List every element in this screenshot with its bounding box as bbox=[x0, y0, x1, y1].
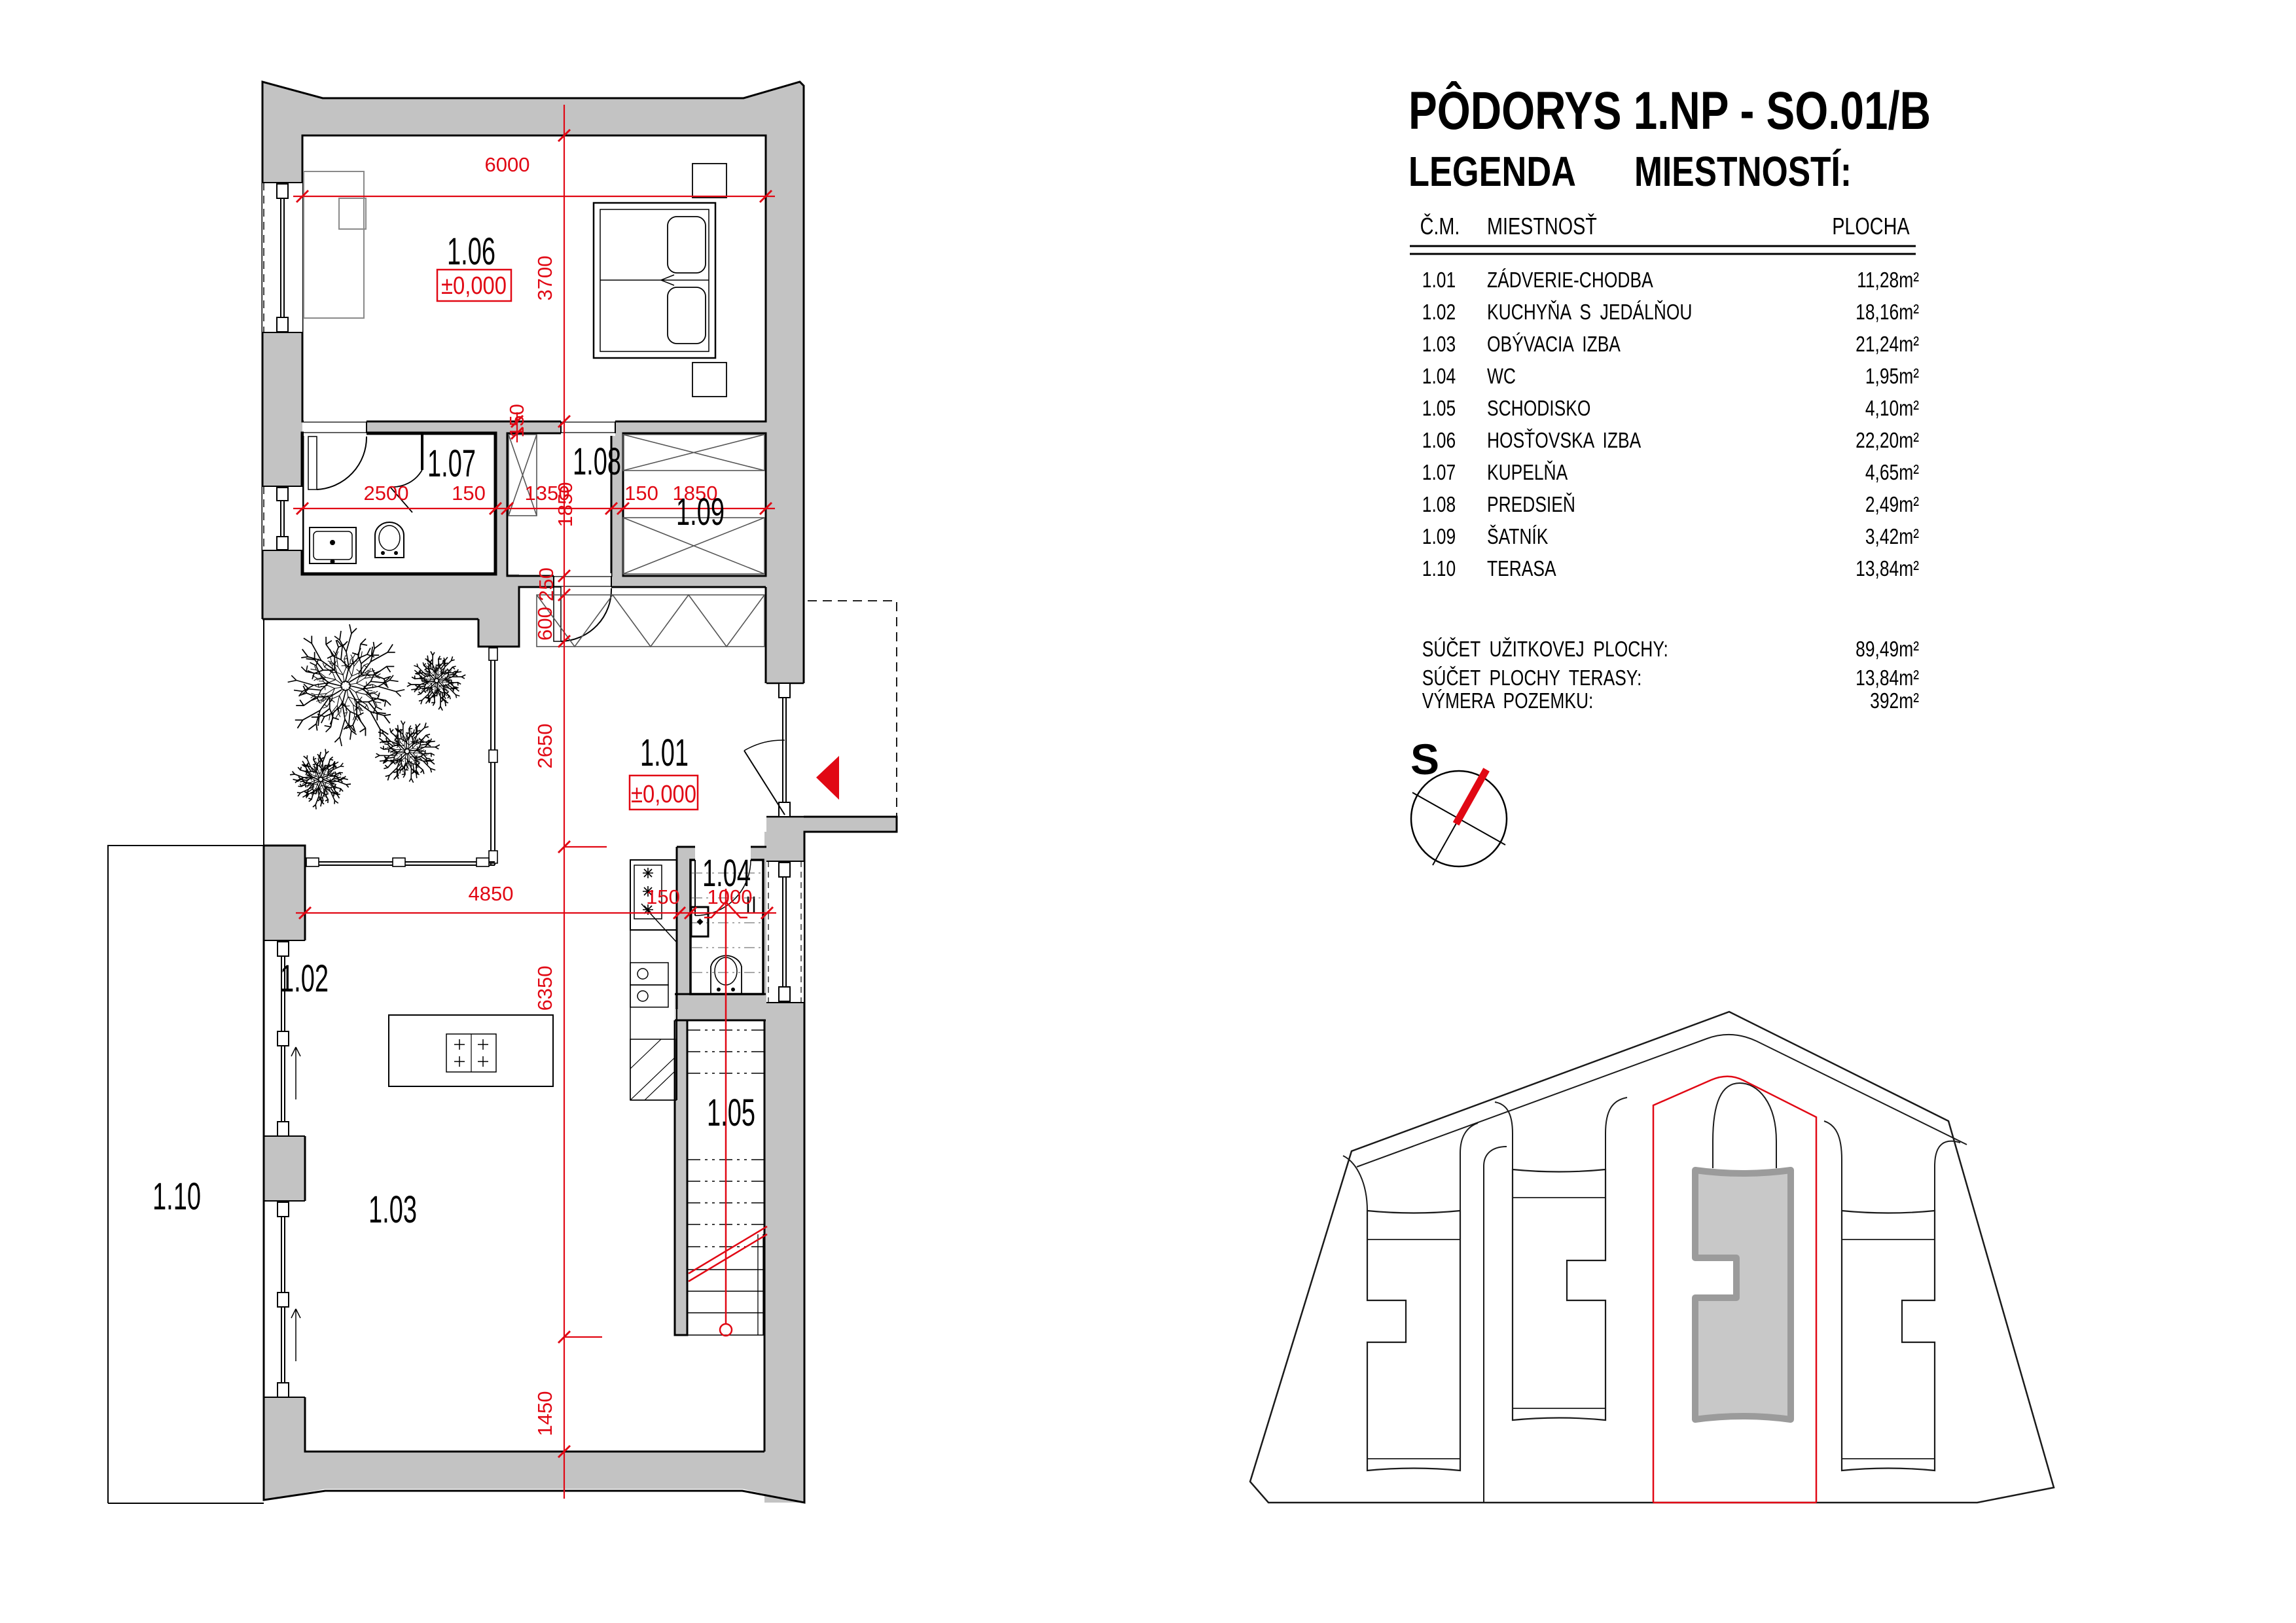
svg-text:4850: 4850 bbox=[469, 882, 514, 905]
svg-text:150: 150 bbox=[505, 404, 528, 438]
svg-text:MIESTNOSŤ: MIESTNOSŤ bbox=[1487, 213, 1597, 240]
svg-text:MIESTNOSTÍ:: MIESTNOSTÍ: bbox=[1634, 148, 1852, 195]
svg-text:LEGENDA: LEGENDA bbox=[1408, 148, 1576, 195]
svg-text:150: 150 bbox=[452, 482, 486, 505]
svg-text:VÝMERA POZEMKU:: VÝMERA POZEMKU: bbox=[1422, 689, 1594, 713]
svg-text:1.02: 1.02 bbox=[280, 957, 329, 1000]
svg-text:1.05: 1.05 bbox=[1422, 397, 1456, 420]
svg-text:±0,000: ±0,000 bbox=[441, 272, 507, 300]
svg-text:1.05: 1.05 bbox=[707, 1092, 755, 1134]
svg-text:1.10: 1.10 bbox=[1422, 557, 1456, 580]
svg-text:13,84m²: 13,84m² bbox=[1856, 557, 1919, 580]
svg-text:1,95m²: 1,95m² bbox=[1865, 365, 1919, 388]
svg-text:250: 250 bbox=[535, 567, 558, 601]
svg-text:3,42m²: 3,42m² bbox=[1865, 525, 1919, 548]
svg-text:±0,000: ±0,000 bbox=[631, 781, 696, 808]
svg-text:2650: 2650 bbox=[533, 724, 556, 769]
svg-text:11,28m²: 11,28m² bbox=[1857, 268, 1919, 292]
svg-text:HOSŤOVSKA IZBA: HOSŤOVSKA IZBA bbox=[1487, 429, 1641, 452]
svg-text:KUPELŇA: KUPELŇA bbox=[1487, 461, 1568, 484]
svg-text:6000: 6000 bbox=[485, 153, 530, 176]
svg-text:13,84m²: 13,84m² bbox=[1856, 666, 1919, 690]
svg-text:PREDSIEŇ: PREDSIEŇ bbox=[1487, 493, 1575, 516]
svg-text:150: 150 bbox=[624, 482, 658, 505]
svg-text:SÚČET UŽITKOVEJ PLOCHY:: SÚČET UŽITKOVEJ PLOCHY: bbox=[1422, 637, 1668, 662]
svg-text:6350: 6350 bbox=[533, 966, 556, 1011]
svg-text:1.06: 1.06 bbox=[1422, 429, 1456, 452]
svg-text:TERASA: TERASA bbox=[1487, 557, 1556, 580]
svg-text:Č.M.: Č.M. bbox=[1420, 213, 1460, 240]
svg-text:1.03: 1.03 bbox=[1422, 332, 1456, 356]
svg-text:1.03: 1.03 bbox=[368, 1188, 417, 1231]
svg-text:1.09: 1.09 bbox=[676, 491, 725, 533]
svg-text:PÔDORYS 1.NP - SO.01/B: PÔDORYS 1.NP - SO.01/B bbox=[1408, 81, 1931, 141]
svg-text:1850: 1850 bbox=[554, 482, 577, 527]
svg-text:1.04: 1.04 bbox=[1422, 365, 1456, 388]
svg-text:1.08: 1.08 bbox=[1422, 493, 1456, 516]
svg-text:1.01: 1.01 bbox=[640, 732, 689, 774]
svg-text:1.07: 1.07 bbox=[1422, 461, 1456, 484]
svg-text:1450: 1450 bbox=[533, 1391, 556, 1436]
svg-text:21,24m²: 21,24m² bbox=[1856, 332, 1919, 356]
svg-text:KUCHYŇA S JEDÁLŇOU: KUCHYŇA S JEDÁLŇOU bbox=[1487, 300, 1692, 324]
svg-text:SCHODISKO: SCHODISKO bbox=[1487, 397, 1590, 420]
svg-text:1.07: 1.07 bbox=[427, 442, 476, 485]
svg-text:S: S bbox=[1410, 735, 1439, 783]
svg-text:1.08: 1.08 bbox=[573, 440, 621, 483]
svg-text:1.04: 1.04 bbox=[702, 852, 751, 895]
svg-text:WC: WC bbox=[1487, 365, 1516, 388]
svg-text:18,16m²: 18,16m² bbox=[1856, 300, 1919, 324]
svg-text:150: 150 bbox=[646, 885, 680, 908]
svg-text:SÚČET PLOCHY TERASY:: SÚČET PLOCHY TERASY: bbox=[1422, 666, 1642, 690]
svg-text:1.06: 1.06 bbox=[447, 230, 495, 273]
svg-text:4,65m²: 4,65m² bbox=[1865, 461, 1919, 484]
svg-text:22,20m²: 22,20m² bbox=[1856, 429, 1919, 452]
svg-text:3700: 3700 bbox=[533, 256, 556, 301]
svg-text:1.09: 1.09 bbox=[1422, 525, 1456, 548]
svg-text:392m²: 392m² bbox=[1870, 689, 1919, 713]
svg-text:OBÝVACIA IZBA: OBÝVACIA IZBA bbox=[1487, 332, 1621, 356]
svg-text:2500: 2500 bbox=[364, 482, 409, 505]
svg-text:2,49m²: 2,49m² bbox=[1865, 493, 1919, 516]
svg-text:PLOCHA: PLOCHA bbox=[1832, 213, 1910, 240]
svg-text:1.10: 1.10 bbox=[152, 1175, 201, 1218]
svg-text:4,10m²: 4,10m² bbox=[1865, 397, 1919, 420]
svg-text:ZÁDVERIE-CHODBA: ZÁDVERIE-CHODBA bbox=[1487, 268, 1653, 292]
svg-text:1.02: 1.02 bbox=[1422, 300, 1456, 324]
svg-text:600: 600 bbox=[533, 607, 556, 641]
svg-text:1.01: 1.01 bbox=[1422, 268, 1456, 292]
svg-text:ŠATNÍK: ŠATNÍK bbox=[1487, 524, 1548, 549]
svg-text:89,49m²: 89,49m² bbox=[1856, 637, 1919, 661]
